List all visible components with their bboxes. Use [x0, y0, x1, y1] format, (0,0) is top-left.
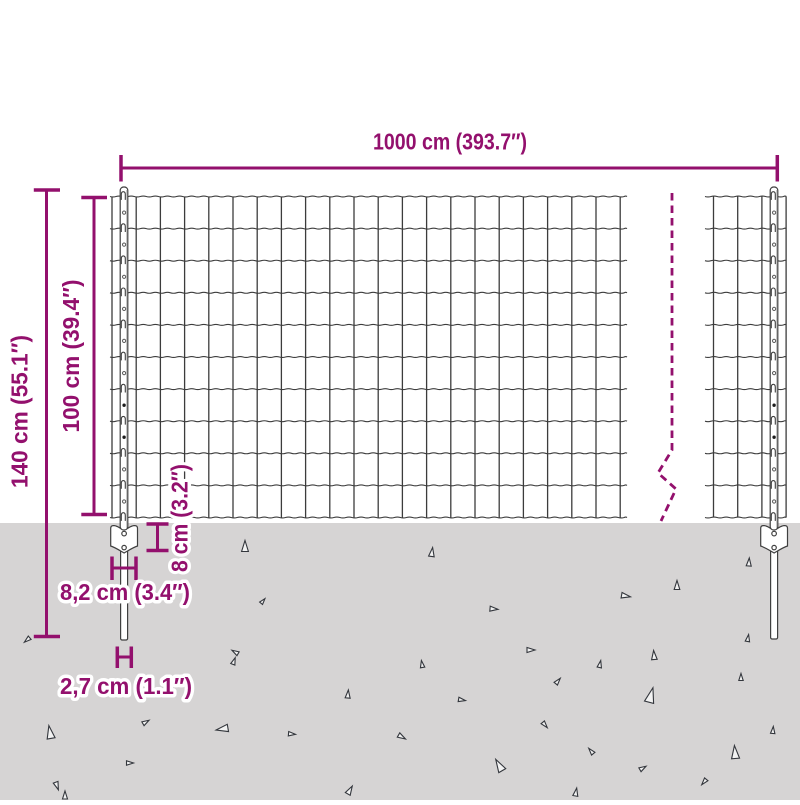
svg-text:2,7 cm (1.1″): 2,7 cm (1.1″) [60, 673, 192, 699]
svg-text:100 cm (39.4″): 100 cm (39.4″) [58, 280, 84, 433]
svg-text:8 cm (3.2″): 8 cm (3.2″) [167, 464, 193, 572]
svg-text:140 cm (55.1″): 140 cm (55.1″) [7, 335, 33, 488]
svg-text:8,2 cm (3.4″): 8,2 cm (3.4″) [60, 579, 190, 605]
svg-text:1000 cm (393.7″): 1000 cm (393.7″) [373, 129, 527, 155]
